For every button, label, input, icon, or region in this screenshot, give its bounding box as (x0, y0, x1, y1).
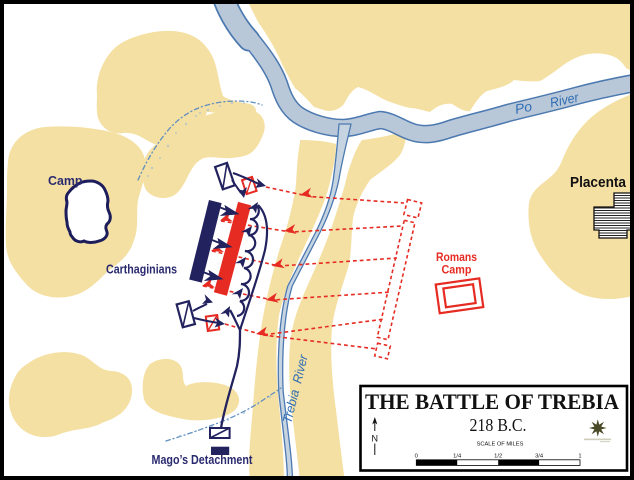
svg-text:1: 1 (578, 454, 581, 460)
svg-text:1/4: 1/4 (453, 454, 462, 460)
svg-text:N: N (372, 434, 379, 444)
svg-text:Camp: Camp (48, 173, 83, 188)
svg-text:Carthaginians: Carthaginians (106, 263, 177, 277)
svg-text:Placenta: Placenta (570, 174, 627, 191)
svg-text:1/2: 1/2 (494, 454, 502, 460)
svg-text:Mago’s Detachment: Mago’s Detachment (152, 453, 254, 467)
svg-text:THE BATTLE OF TREBIA: THE BATTLE OF TREBIA (365, 389, 619, 414)
svg-text:218 B.C.: 218 B.C. (470, 415, 527, 435)
svg-text:3/4: 3/4 (535, 454, 544, 460)
svg-text:SCALE OF MILES: SCALE OF MILES (477, 442, 524, 448)
svg-text:Camp: Camp (442, 263, 472, 277)
svg-text:0: 0 (415, 454, 418, 460)
